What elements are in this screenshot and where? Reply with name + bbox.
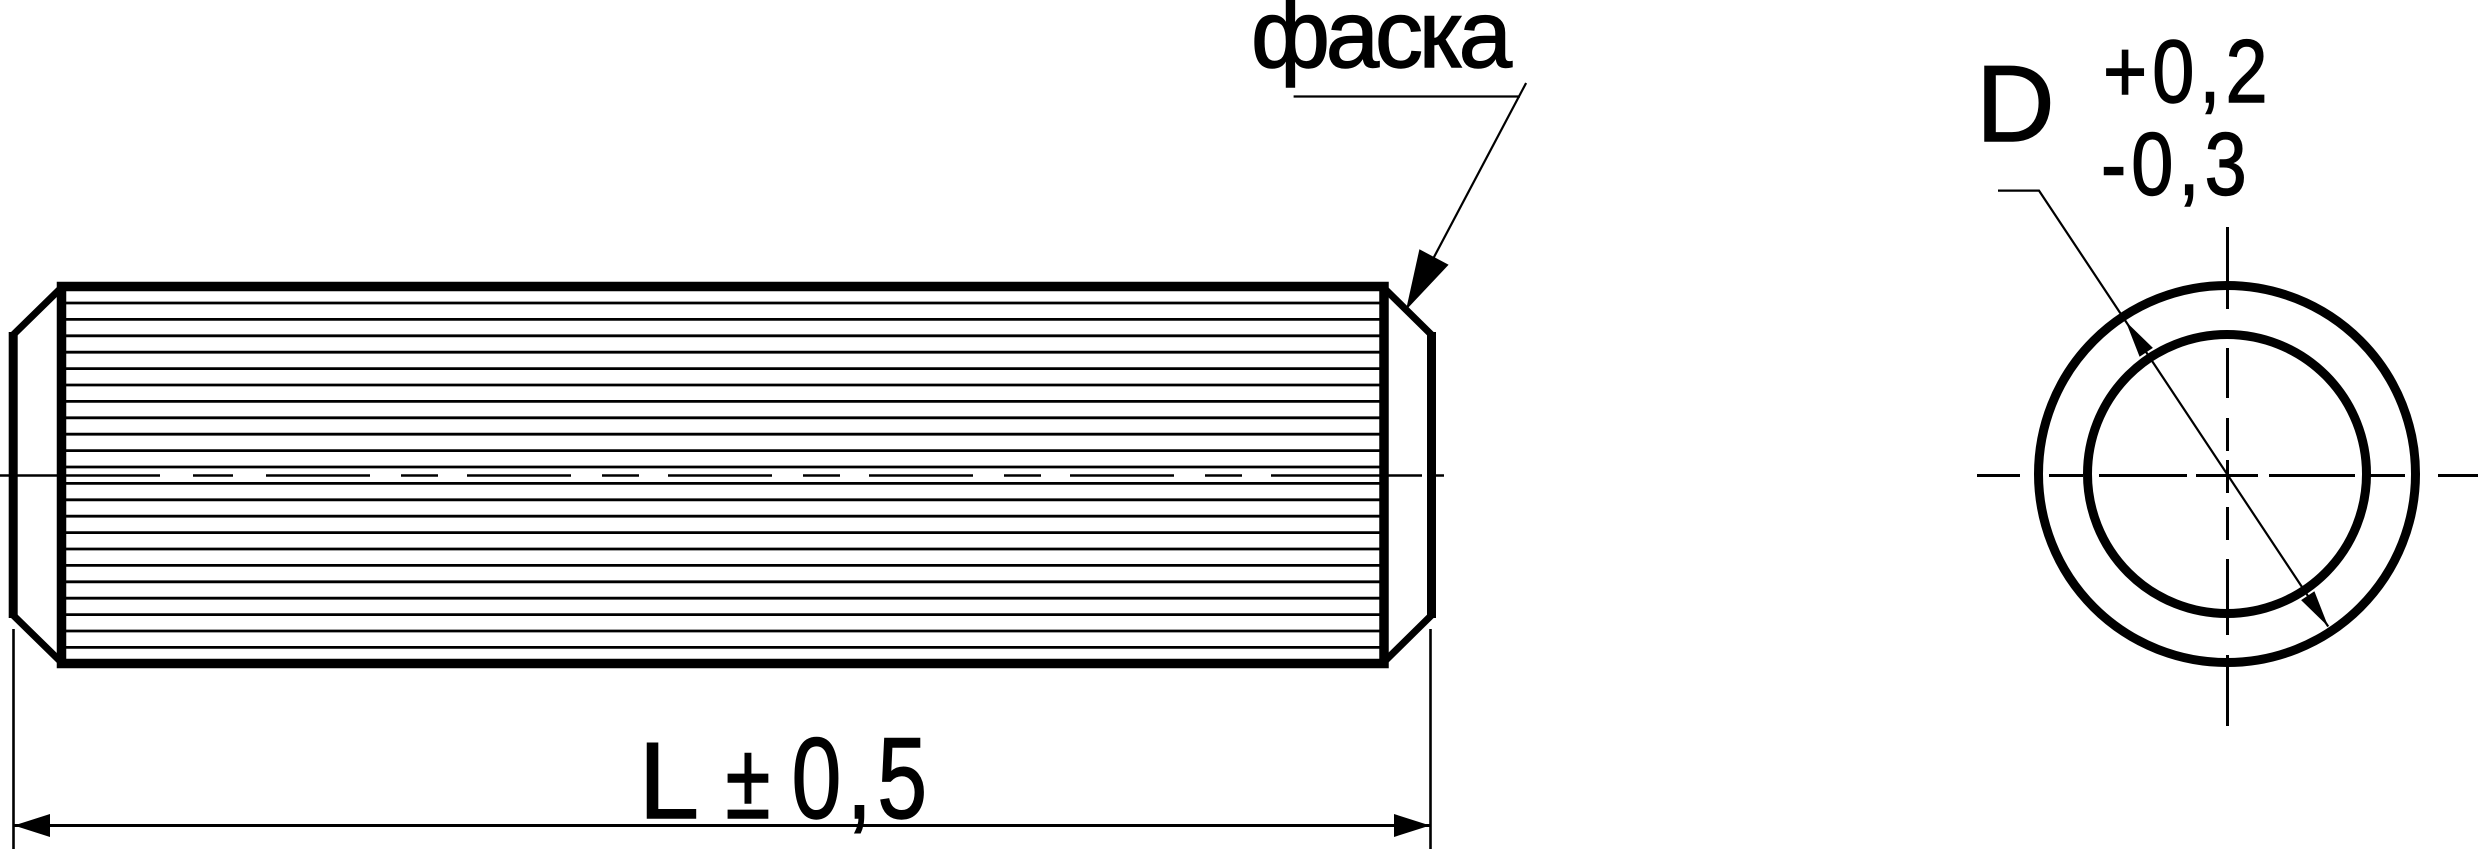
svg-text:-0,3: -0,3 [2101, 114, 2252, 214]
svg-text:фаска: фаска [1251, 0, 1513, 88]
svg-text:±: ± [726, 721, 771, 842]
svg-text:0,5: 0,5 [792, 714, 933, 842]
svg-text:L: L [639, 720, 700, 842]
svg-text:D: D [1976, 43, 2055, 165]
svg-text:+0,2: +0,2 [2103, 21, 2273, 121]
